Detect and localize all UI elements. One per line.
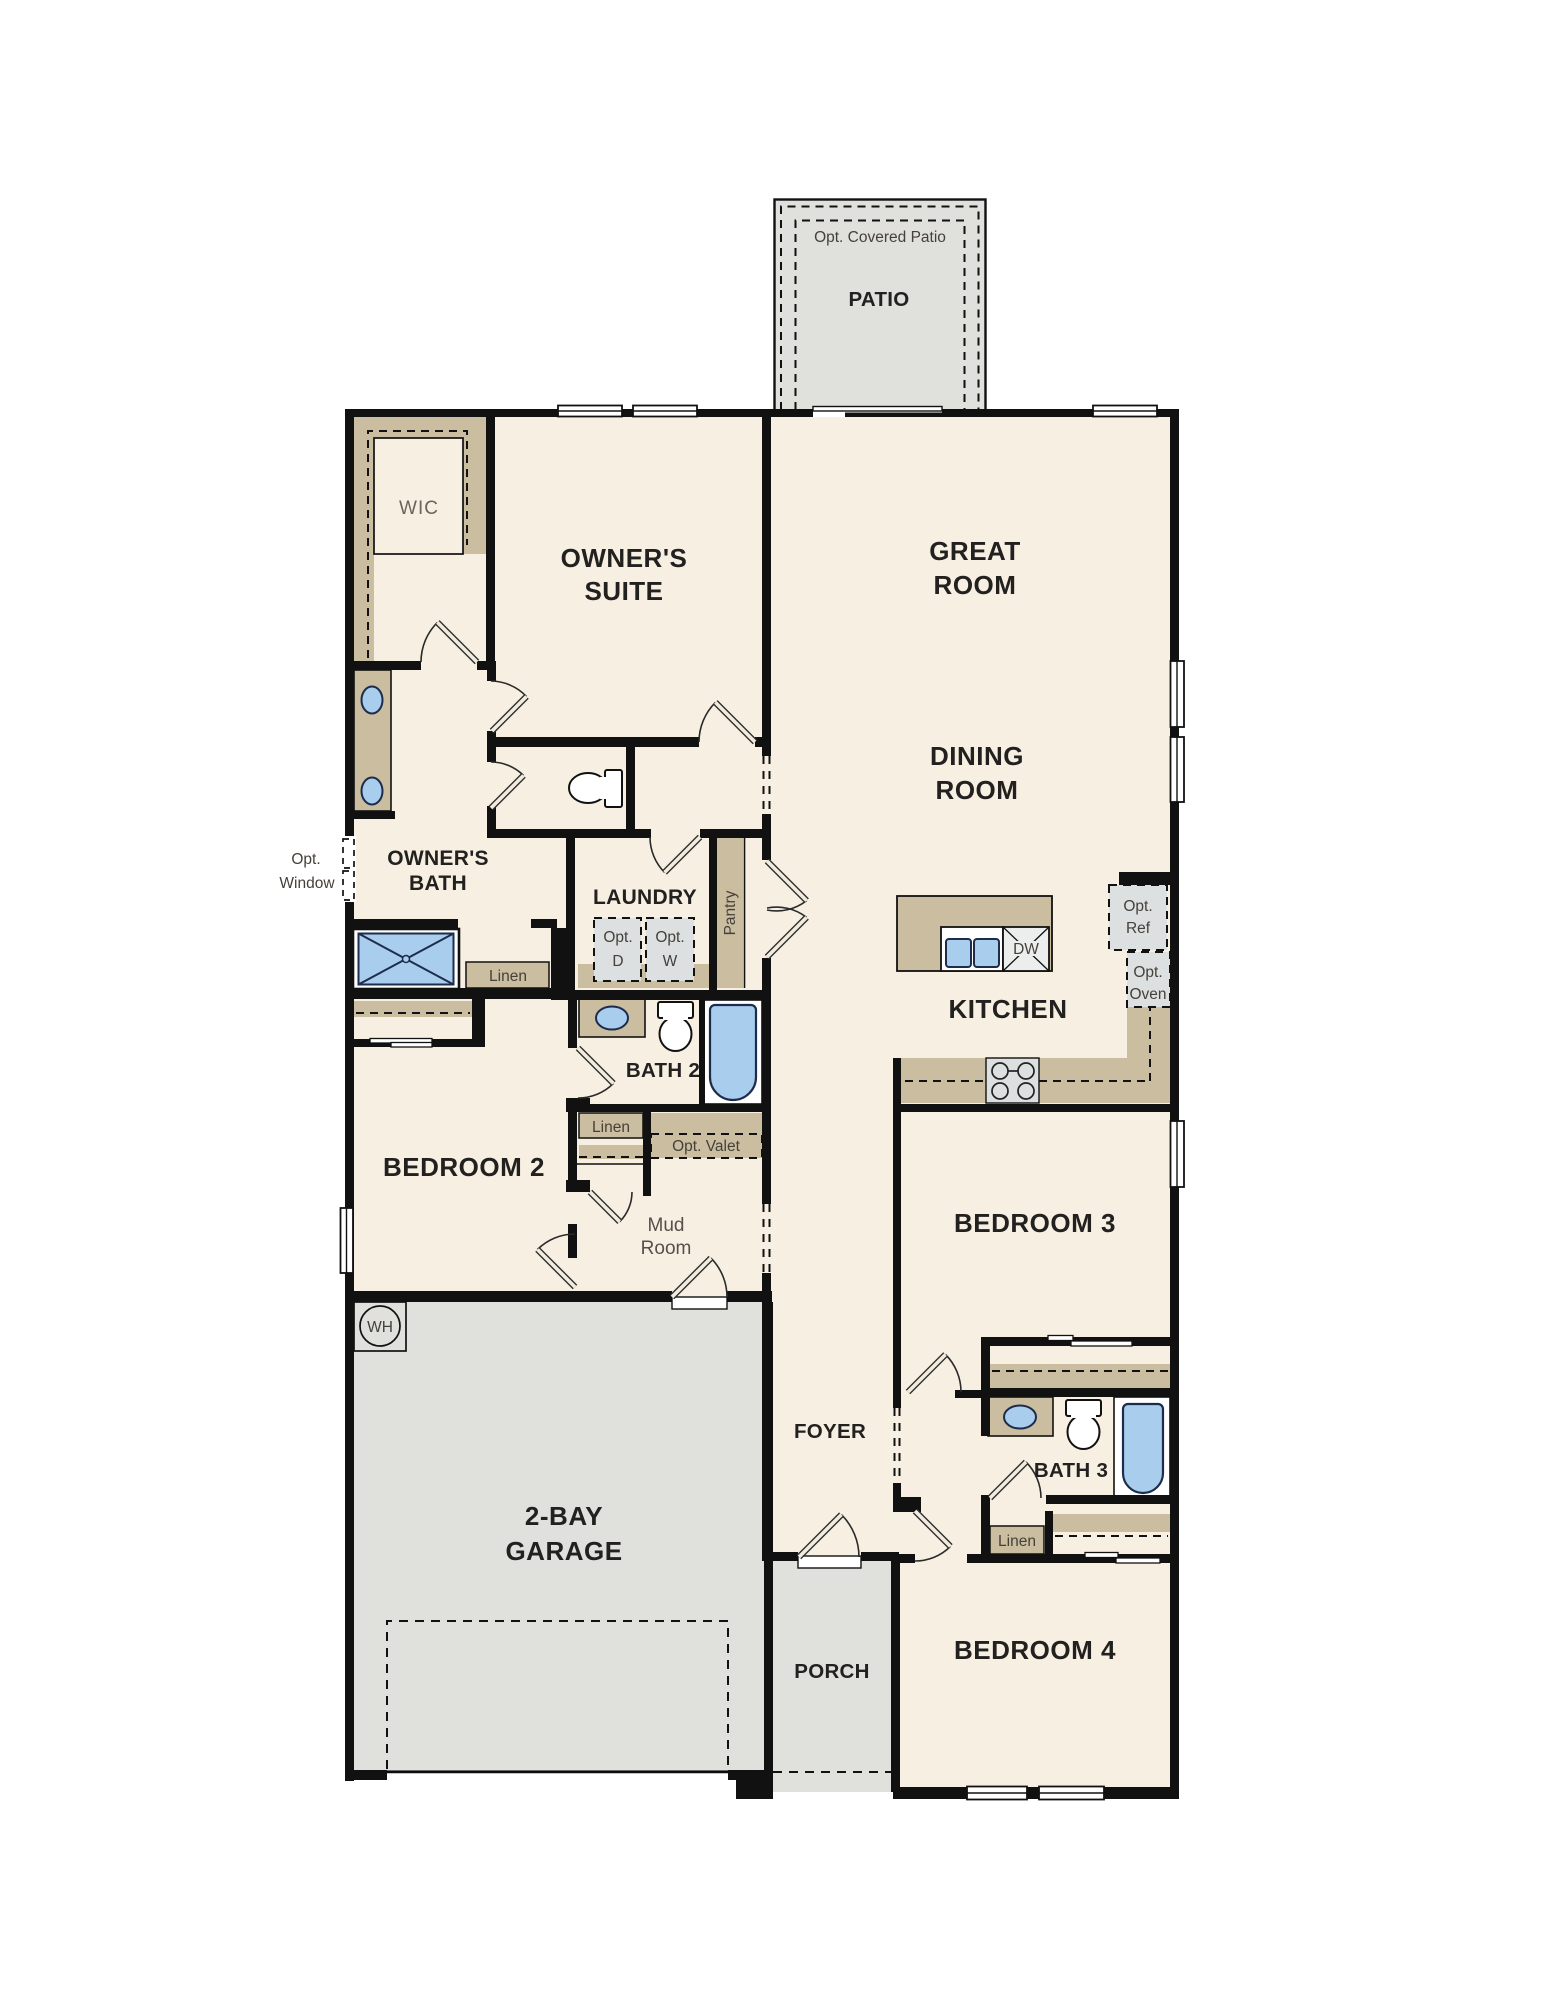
svg-text:GREAT: GREAT bbox=[929, 536, 1021, 566]
svg-text:BEDROOM 3: BEDROOM 3 bbox=[954, 1208, 1116, 1238]
svg-text:PORCH: PORCH bbox=[794, 1660, 870, 1683]
svg-text:BEDROOM 2: BEDROOM 2 bbox=[383, 1152, 545, 1182]
svg-text:WIC: WIC bbox=[399, 498, 439, 519]
svg-text:PATIO: PATIO bbox=[848, 288, 909, 311]
svg-text:Mud: Mud bbox=[648, 1215, 685, 1236]
svg-text:SUITE: SUITE bbox=[584, 576, 663, 606]
svg-text:GARAGE: GARAGE bbox=[505, 1536, 622, 1566]
svg-text:Ref: Ref bbox=[1126, 920, 1151, 937]
svg-text:OWNER'S: OWNER'S bbox=[561, 543, 688, 573]
svg-text:KITCHEN: KITCHEN bbox=[948, 994, 1067, 1024]
svg-text:DINING: DINING bbox=[930, 741, 1024, 771]
svg-text:Opt. Valet: Opt. Valet bbox=[672, 1138, 740, 1155]
svg-text:Opt.: Opt. bbox=[291, 851, 320, 868]
svg-text:DW: DW bbox=[1013, 941, 1039, 958]
svg-text:Opt.: Opt. bbox=[1123, 898, 1152, 915]
svg-text:Opt.: Opt. bbox=[1133, 964, 1162, 981]
svg-text:Opt.: Opt. bbox=[603, 929, 632, 946]
svg-text:BATH 2: BATH 2 bbox=[626, 1059, 700, 1082]
svg-text:Opt.: Opt. bbox=[655, 929, 684, 946]
svg-text:LAUNDRY: LAUNDRY bbox=[593, 886, 697, 909]
svg-text:ROOM: ROOM bbox=[936, 775, 1019, 805]
svg-text:Linen: Linen bbox=[592, 1119, 630, 1136]
svg-text:BATH: BATH bbox=[409, 872, 467, 895]
svg-text:Pantry: Pantry bbox=[722, 890, 739, 935]
svg-text:WH: WH bbox=[367, 1319, 393, 1336]
svg-text:FOYER: FOYER bbox=[794, 1420, 866, 1443]
svg-text:W: W bbox=[663, 953, 678, 970]
svg-text:2-BAY: 2-BAY bbox=[525, 1501, 603, 1531]
svg-text:Window: Window bbox=[279, 875, 335, 892]
svg-text:OWNER'S: OWNER'S bbox=[387, 847, 489, 870]
svg-text:Room: Room bbox=[641, 1238, 692, 1259]
svg-text:BATH 3: BATH 3 bbox=[1034, 1459, 1108, 1482]
svg-text:Oven: Oven bbox=[1129, 986, 1166, 1003]
svg-text:D: D bbox=[612, 953, 623, 970]
svg-text:BEDROOM 4: BEDROOM 4 bbox=[954, 1635, 1116, 1665]
svg-text:Linen: Linen bbox=[489, 968, 527, 985]
svg-text:Linen: Linen bbox=[998, 1533, 1036, 1550]
svg-text:Opt. Covered Patio: Opt. Covered Patio bbox=[814, 229, 946, 246]
svg-text:ROOM: ROOM bbox=[934, 570, 1017, 600]
